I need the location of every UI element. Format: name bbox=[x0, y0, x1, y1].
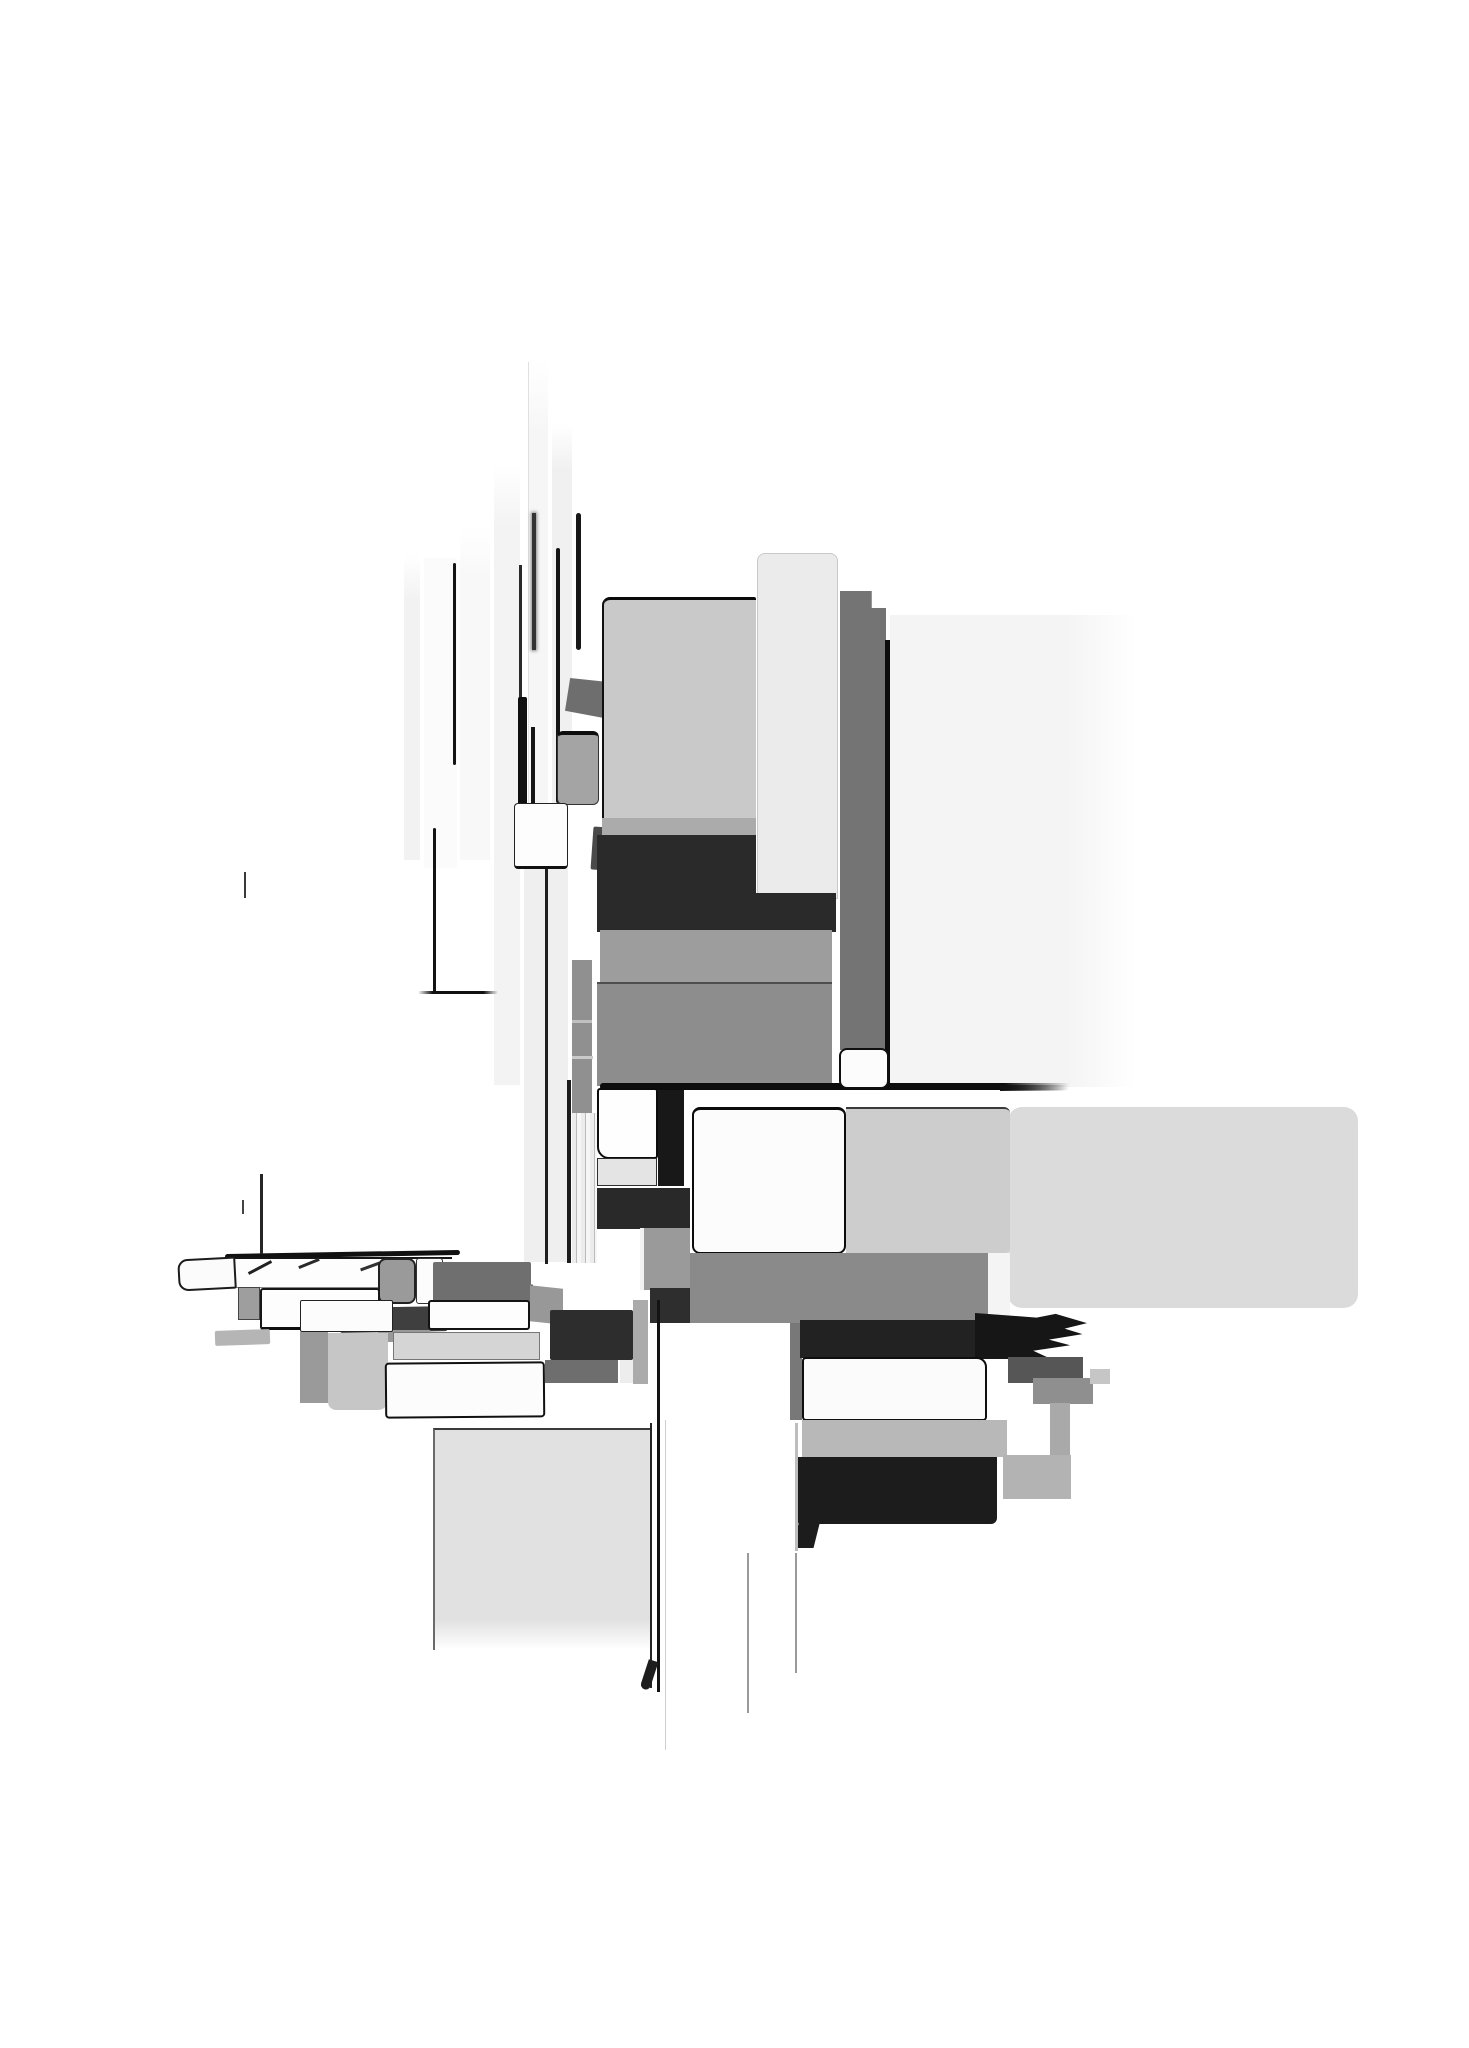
leftarm-dark-block bbox=[550, 1310, 633, 1360]
leftarm-white-band2 bbox=[300, 1300, 393, 1332]
bottom-white-column bbox=[665, 1420, 798, 1750]
faint-strip-e bbox=[404, 555, 420, 860]
hairline-short-a bbox=[244, 872, 246, 898]
leftarm-darkgray-band bbox=[433, 1262, 531, 1303]
gray-band-lower bbox=[597, 982, 832, 1086]
arm-mid-gray-band bbox=[690, 1253, 988, 1323]
center-black-strip bbox=[658, 1090, 684, 1186]
hairline-short-b bbox=[260, 1174, 263, 1254]
right-arm-pale-slab bbox=[1008, 1107, 1358, 1308]
faint-strip-c bbox=[460, 527, 490, 860]
double-line-a bbox=[650, 1423, 652, 1688]
arm-gray-block bbox=[1033, 1378, 1093, 1404]
bottom-gray-strip bbox=[1050, 1403, 1070, 1456]
blurred-black-line bbox=[532, 513, 536, 650]
thin-line-bottom-2 bbox=[795, 1553, 797, 1673]
inner-black-line bbox=[531, 727, 535, 803]
leftarm-light-column bbox=[328, 1333, 388, 1410]
central-dark-block-ext bbox=[754, 893, 836, 932]
center-pale-band bbox=[597, 1158, 657, 1186]
upper-right-pale-field bbox=[890, 615, 1136, 1087]
strip-f-right-edge bbox=[576, 513, 581, 650]
small-white-block bbox=[514, 803, 568, 869]
column-right-hairline bbox=[795, 1423, 798, 1551]
gray-column-divider-1 bbox=[572, 1020, 592, 1023]
right-arm-white-slab bbox=[692, 1107, 846, 1254]
center-dark-band bbox=[597, 1188, 690, 1229]
center-gray-sliver bbox=[633, 1300, 648, 1384]
l-hairline-vertical bbox=[433, 828, 436, 994]
center-gray-piece bbox=[640, 1228, 690, 1290]
l-hairline-horizontal bbox=[418, 991, 498, 994]
strip-d-right-edge bbox=[453, 563, 456, 765]
tower-bottom-sliver bbox=[602, 818, 756, 835]
arm-black-spiky bbox=[975, 1313, 1087, 1359]
thin-line-bottom-1 bbox=[747, 1553, 749, 1713]
center-white-block bbox=[597, 1088, 658, 1159]
leftarm-gray-tip2 bbox=[215, 1329, 270, 1346]
hairline-short-c bbox=[242, 1200, 244, 1214]
leftarm-gray-column bbox=[300, 1332, 328, 1403]
bottom-black-block bbox=[798, 1457, 997, 1524]
central-dark-block bbox=[597, 835, 756, 932]
strip-foot-white-block bbox=[839, 1048, 889, 1089]
gray-column-divider-2 bbox=[572, 1056, 593, 1059]
column-hairline bbox=[545, 866, 548, 1264]
arm-lightgray-band bbox=[802, 1420, 1007, 1457]
right-arm-gray-slab bbox=[846, 1107, 1010, 1254]
leftarm-tip bbox=[177, 1257, 237, 1292]
arm-black-band bbox=[800, 1320, 978, 1358]
tower-darkgray-strip bbox=[840, 591, 886, 1050]
leftarm-gray-band2 bbox=[545, 1360, 618, 1383]
arm-light-piece bbox=[1090, 1369, 1110, 1384]
arm-white-strip bbox=[988, 1253, 1010, 1323]
striped-strip bbox=[572, 1113, 597, 1263]
arm-white-band bbox=[802, 1357, 987, 1421]
fading-line-right bbox=[1000, 1085, 1067, 1091]
gray-band-upper bbox=[600, 930, 832, 983]
mid-gray-block bbox=[557, 731, 599, 805]
leftarm-gray-round bbox=[378, 1258, 416, 1304]
tower-main-slab bbox=[602, 597, 756, 837]
bottom-gray-patch bbox=[1003, 1455, 1071, 1499]
thick-black-bar bbox=[518, 697, 527, 805]
tower-pale-slab bbox=[757, 553, 838, 899]
leftarm-white-band4 bbox=[385, 1361, 545, 1418]
line-foot-curl bbox=[640, 1659, 659, 1691]
thin-line-pair bbox=[519, 565, 522, 705]
leftarm-light-band bbox=[393, 1332, 540, 1360]
artwork-canvas bbox=[0, 0, 1469, 2048]
center-dark-piece bbox=[650, 1288, 690, 1323]
column-right-edge bbox=[567, 1080, 571, 1263]
tower-black-strip bbox=[885, 640, 890, 1087]
leftarm-white-band3 bbox=[428, 1300, 530, 1330]
leftarm-gray-left bbox=[238, 1287, 260, 1320]
bottom-pale-slab bbox=[433, 1428, 650, 1650]
small-gray-column bbox=[572, 960, 592, 1113]
double-line-b bbox=[657, 1300, 660, 1692]
